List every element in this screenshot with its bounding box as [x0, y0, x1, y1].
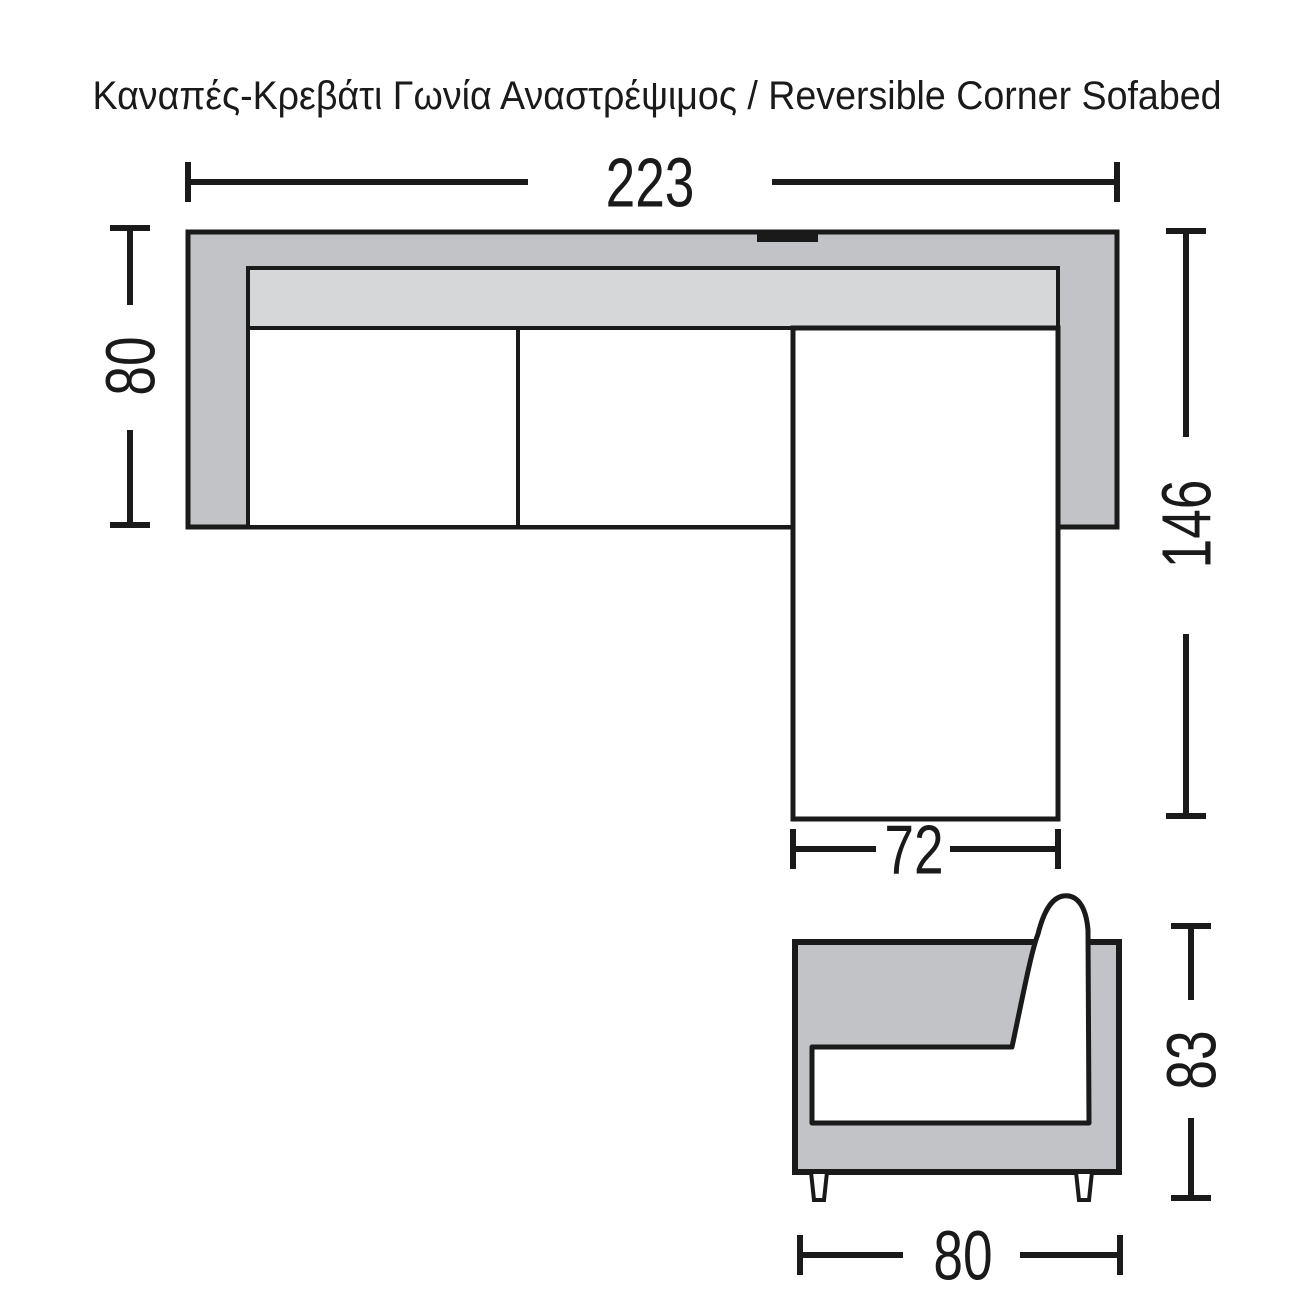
page-title: Καναπές-Κρεβάτι Γωνία Αναστρέψιμος / Rev…	[92, 74, 1221, 118]
dim-label-chaise-depth: 146	[1149, 480, 1227, 569]
chaise-section	[793, 328, 1058, 819]
dim-label-chaise-width: 72	[884, 812, 943, 890]
diagram-svg: Καναπές-Κρεβάτι Γωνία Αναστρέψιμος / Rev…	[0, 0, 1300, 1300]
top-edge-notch	[757, 233, 818, 242]
side-view	[795, 896, 1119, 1200]
dim-chaise-depth: 146	[1149, 231, 1227, 816]
dim-label-sofa-depth: 80	[93, 336, 171, 395]
dim-side-height: 83	[1154, 926, 1232, 1198]
dim-side-depth: 80	[800, 1218, 1120, 1296]
dim-sofa-depth: 80	[93, 228, 171, 525]
dim-chaise-width: 72	[793, 812, 1058, 890]
side-view-left-leg	[811, 1172, 827, 1200]
top-view	[188, 232, 1117, 819]
dim-label-sofa-width: 223	[606, 145, 695, 223]
dim-label-side-height: 83	[1154, 1030, 1232, 1089]
backrest-cushion	[248, 268, 1058, 328]
dim-sofa-width: 223	[188, 145, 1117, 223]
sofabed-dimension-diagram: Καναπές-Κρεβάτι Γωνία Αναστρέψιμος / Rev…	[0, 0, 1300, 1300]
side-view-right-leg	[1076, 1172, 1092, 1200]
dim-label-side-depth: 80	[933, 1218, 992, 1296]
